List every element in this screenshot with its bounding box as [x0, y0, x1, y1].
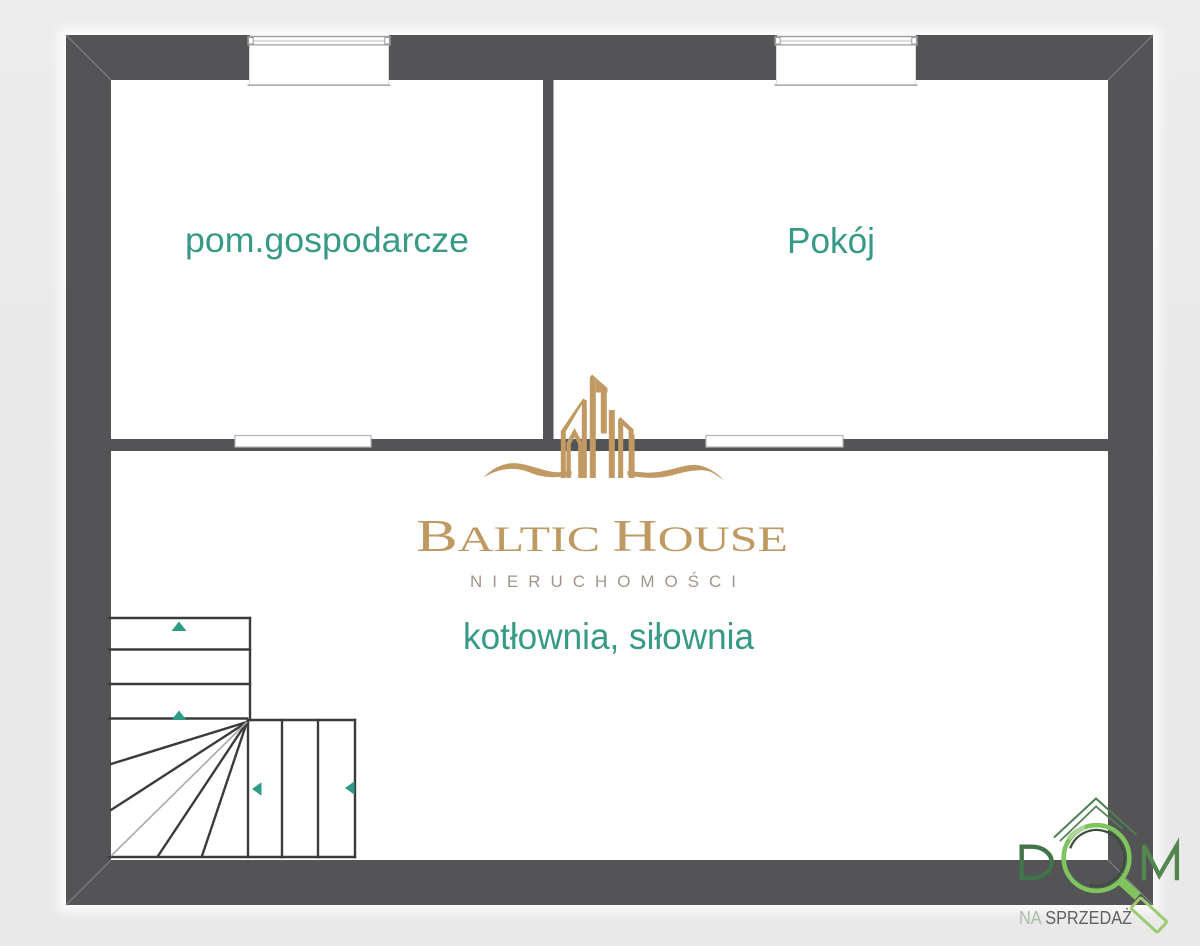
svg-text:pom.gospodarcze: pom.gospodarcze: [185, 221, 469, 260]
svg-text:NA SPRZEDAŻ: NA SPRZEDAŻ: [1019, 907, 1132, 928]
svg-text:NIERUCHOMOŚCI: NIERUCHOMOŚCI: [470, 572, 746, 591]
svg-text:BALTIC HOUSE: BALTIC HOUSE: [416, 511, 788, 561]
svg-text:Pokój: Pokój: [787, 220, 875, 261]
svg-text:kotłownia, siłownia: kotłownia, siłownia: [463, 616, 754, 657]
